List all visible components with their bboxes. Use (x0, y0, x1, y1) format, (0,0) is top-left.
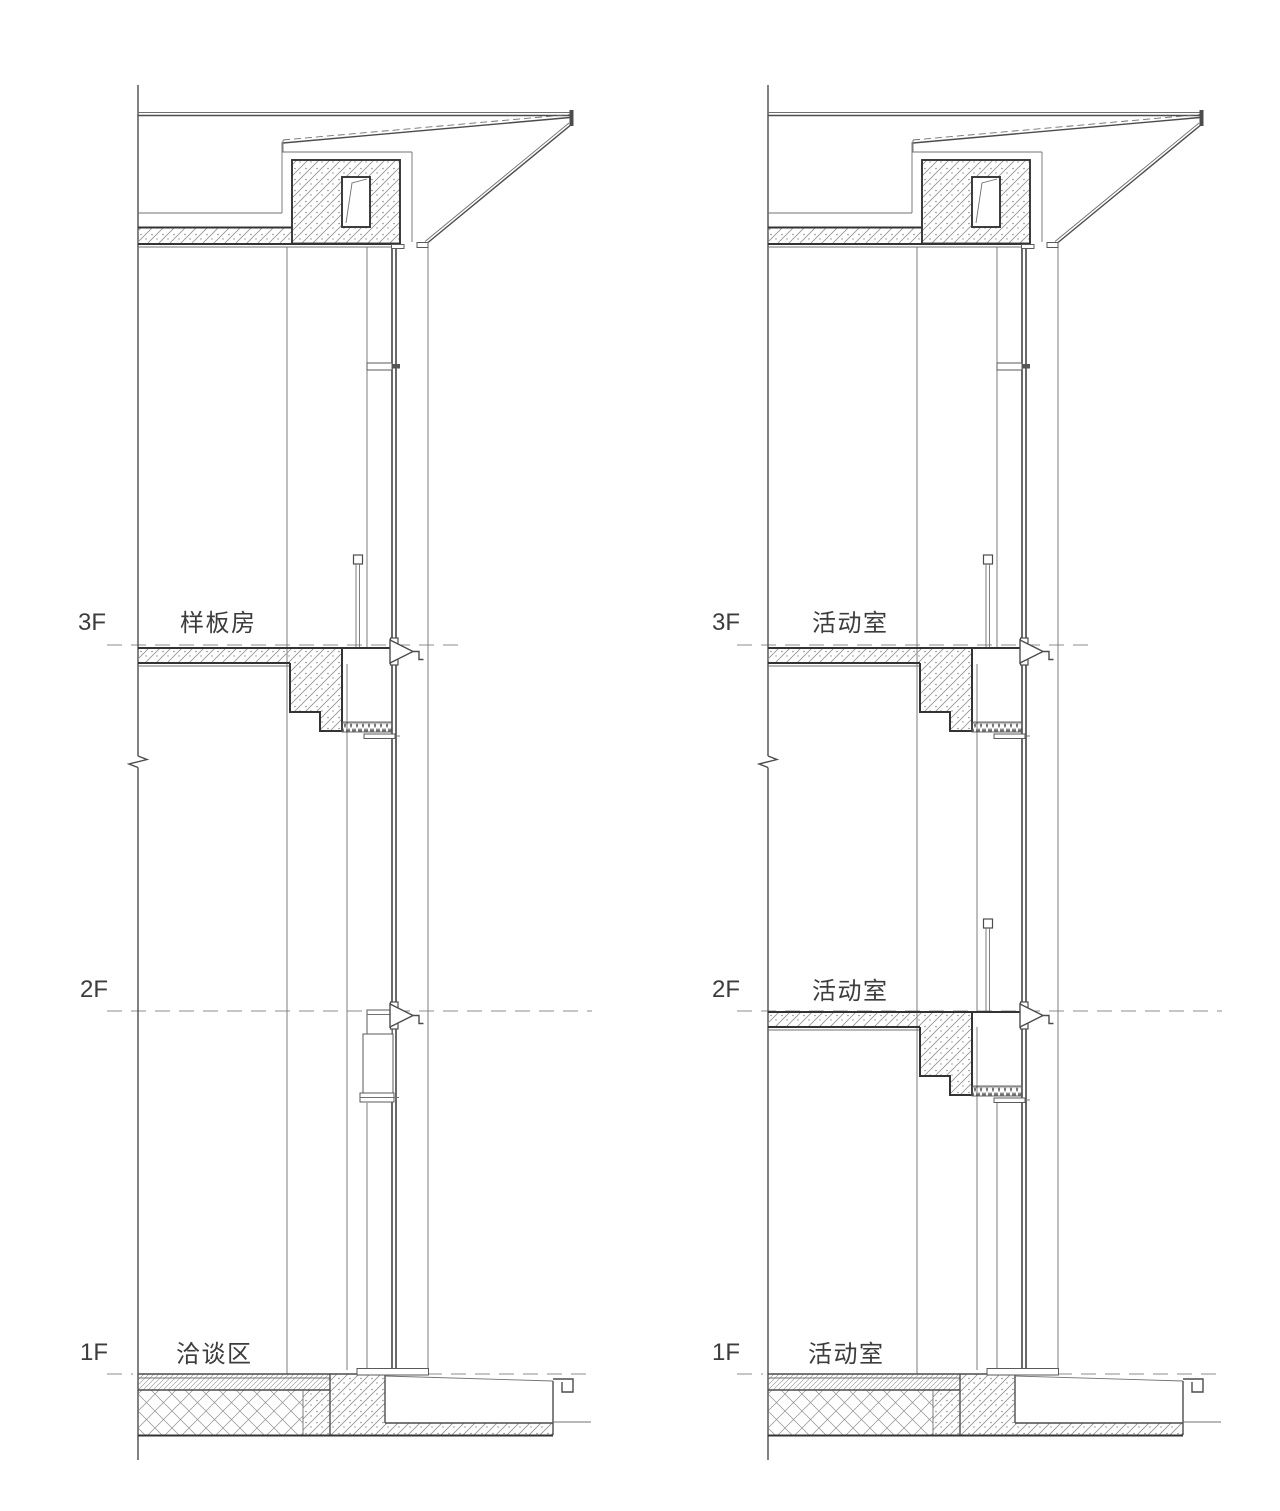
level-dashed-lines (107, 645, 592, 1374)
mullion-bracket-2f (390, 1002, 424, 1029)
hanger-rod (354, 555, 363, 648)
roof-parapet-canopy (768, 110, 1204, 249)
transom-joint (997, 363, 1030, 370)
drawing-sheet: 3F 样板房 2F 1F 洽谈区 3F 活动室 2F 活动室 1F 活动室 (0, 0, 1280, 1511)
floor-slab-3f (138, 638, 424, 739)
level-label-3f-right: 3F (712, 611, 740, 635)
level-label-3f-left: 3F (78, 611, 106, 635)
wall-section-left (107, 85, 592, 1460)
floor-slab-3f (768, 638, 1054, 739)
wall-section-right (737, 85, 1222, 1460)
level-label-1f-right: 1F (712, 1341, 740, 1365)
ground-slab-1f (138, 1369, 591, 1436)
room-label-1f-right: 活动室 (808, 1343, 885, 1367)
roof-parapet-canopy (138, 110, 574, 249)
break-symbol (129, 756, 147, 768)
floor-slab-2f (768, 1002, 1054, 1103)
level-label-2f-right: 2F (712, 978, 740, 1002)
room-label-2f-right: 活动室 (812, 980, 889, 1004)
hanger-rod (984, 555, 993, 648)
room-label-3f-right: 活动室 (812, 612, 889, 636)
room-label-3f-left: 样板房 (180, 612, 257, 636)
room-label-1f-left: 洽谈区 (176, 1343, 253, 1367)
level-dashed-lines (737, 645, 1222, 1374)
ground-slab-1f (768, 1369, 1221, 1436)
hanger-rod (984, 919, 993, 1012)
level-label-2f-left: 2F (80, 978, 108, 1002)
break-symbol (759, 756, 777, 768)
transom-joint (367, 363, 400, 370)
section-drawing-canvas (0, 0, 1280, 1511)
level-label-1f-left: 1F (80, 1341, 108, 1365)
